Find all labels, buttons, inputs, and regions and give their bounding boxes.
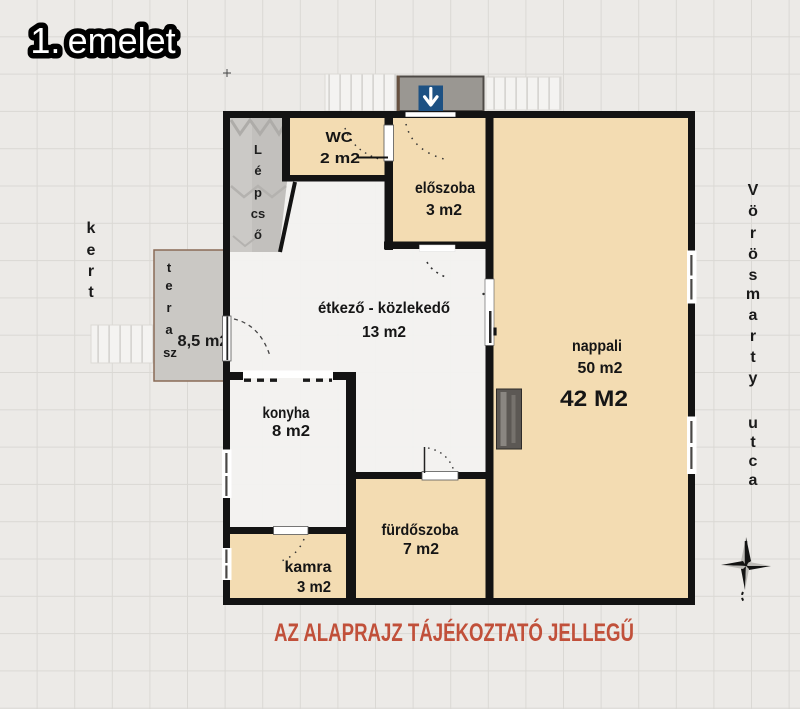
svg-text:V: V (748, 182, 759, 199)
svg-text:42 M2: 42 M2 (560, 386, 628, 411)
svg-text:c: c (749, 453, 758, 470)
svg-text:r: r (166, 300, 171, 315)
svg-text:u: u (748, 415, 758, 432)
svg-text:3 m2: 3 m2 (297, 579, 331, 596)
svg-text:fürdőszoba: fürdőszoba (382, 522, 459, 539)
svg-text:t: t (88, 284, 94, 301)
svg-text:r: r (750, 328, 756, 345)
svg-text:ö: ö (748, 203, 758, 220)
svg-text:13 m2: 13 m2 (362, 324, 406, 341)
svg-text:a: a (749, 307, 758, 324)
svg-text:r: r (88, 263, 94, 280)
svg-text:nappali: nappali (572, 338, 622, 355)
svg-text:t: t (750, 434, 756, 451)
svg-text:s: s (749, 267, 758, 284)
svg-text:k: k (87, 220, 96, 237)
svg-text:8,5 m2: 8,5 m2 (178, 333, 229, 350)
svg-text:sz: sz (163, 345, 177, 360)
svg-text:előszoba: előszoba (415, 180, 475, 197)
svg-text:50 m2: 50 m2 (578, 360, 623, 377)
svg-text:y: y (749, 370, 758, 387)
svg-text:2 m2: 2 m2 (320, 150, 360, 167)
svg-text:étkező - közlekedő: étkező - közlekedő (318, 300, 450, 317)
svg-text:8 m2: 8 m2 (272, 423, 310, 440)
svg-text:t: t (750, 349, 756, 366)
svg-text:ő: ő (254, 227, 262, 242)
svg-text:t: t (167, 260, 172, 275)
svg-text:L: L (254, 142, 262, 157)
svg-text:kamra: kamra (285, 559, 332, 576)
svg-text:AZ ALAPRAJZ TÁJÉKOZTATÓ JELLEG: AZ ALAPRAJZ TÁJÉKOZTATÓ JELLEGŰ (274, 617, 634, 647)
svg-text:WC: WC (326, 129, 353, 146)
svg-text:p: p (254, 185, 262, 200)
svg-text:e: e (165, 278, 172, 293)
svg-text:cs: cs (251, 206, 265, 221)
svg-text:m: m (746, 286, 760, 303)
svg-text:a: a (749, 472, 758, 489)
svg-text:1. emelet: 1. emelet (30, 20, 175, 61)
svg-text:ö: ö (748, 246, 758, 263)
svg-text:é: é (254, 163, 261, 178)
svg-text:3 m2: 3 m2 (426, 202, 462, 219)
svg-text:7 m2: 7 m2 (403, 541, 439, 558)
svg-text:r: r (750, 225, 756, 242)
svg-text:e: e (87, 242, 96, 259)
svg-text:a: a (165, 322, 173, 337)
svg-text:konyha: konyha (263, 405, 310, 422)
